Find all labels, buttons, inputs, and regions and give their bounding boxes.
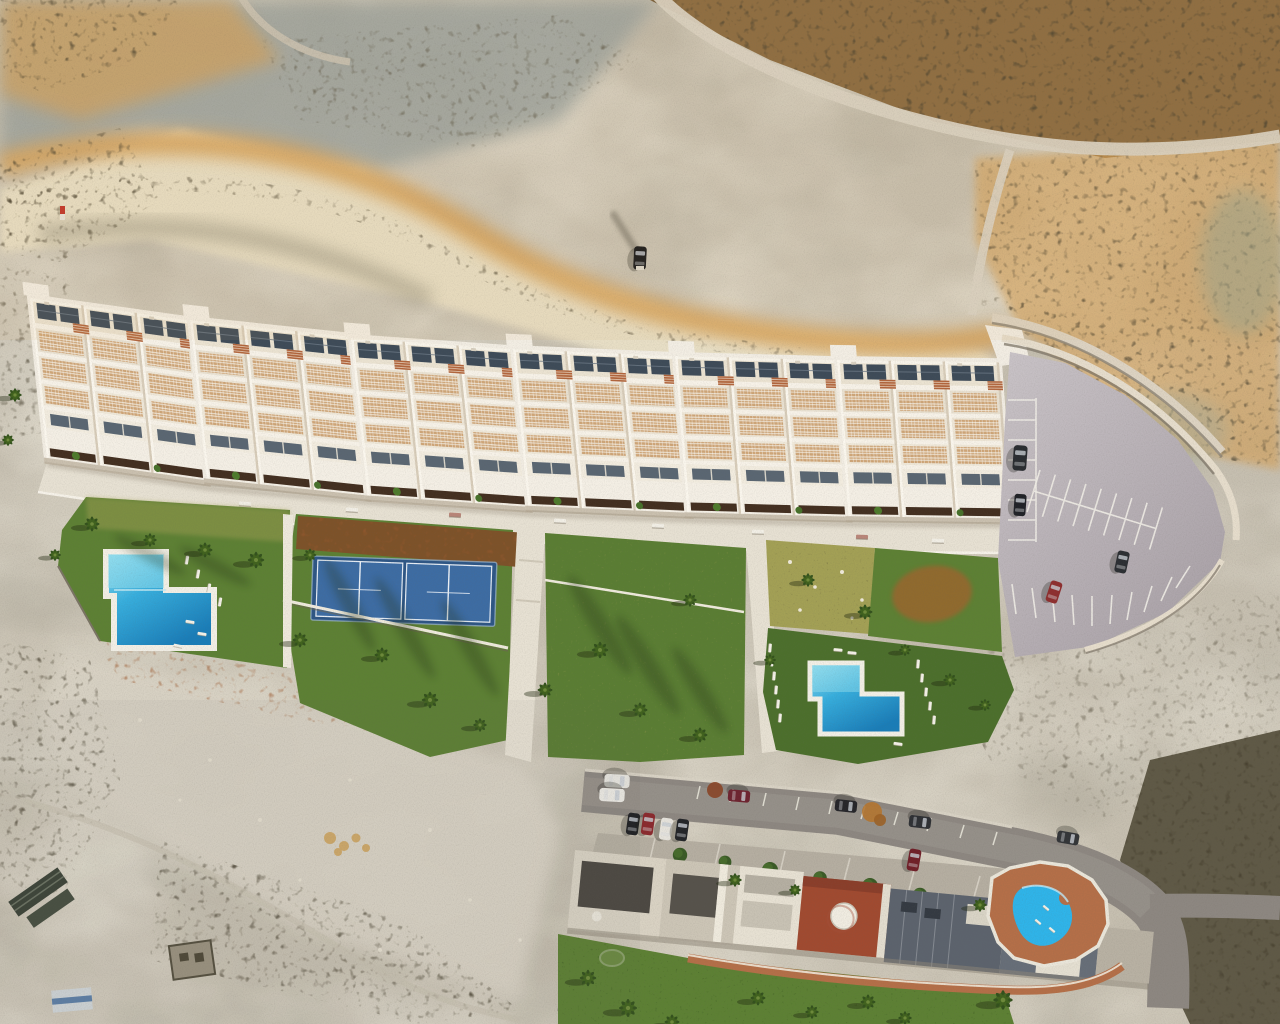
screenshot (0, 0, 1280, 1024)
aerial-photo-canvas (0, 0, 1280, 1024)
photo-grain (0, 0, 1280, 1024)
